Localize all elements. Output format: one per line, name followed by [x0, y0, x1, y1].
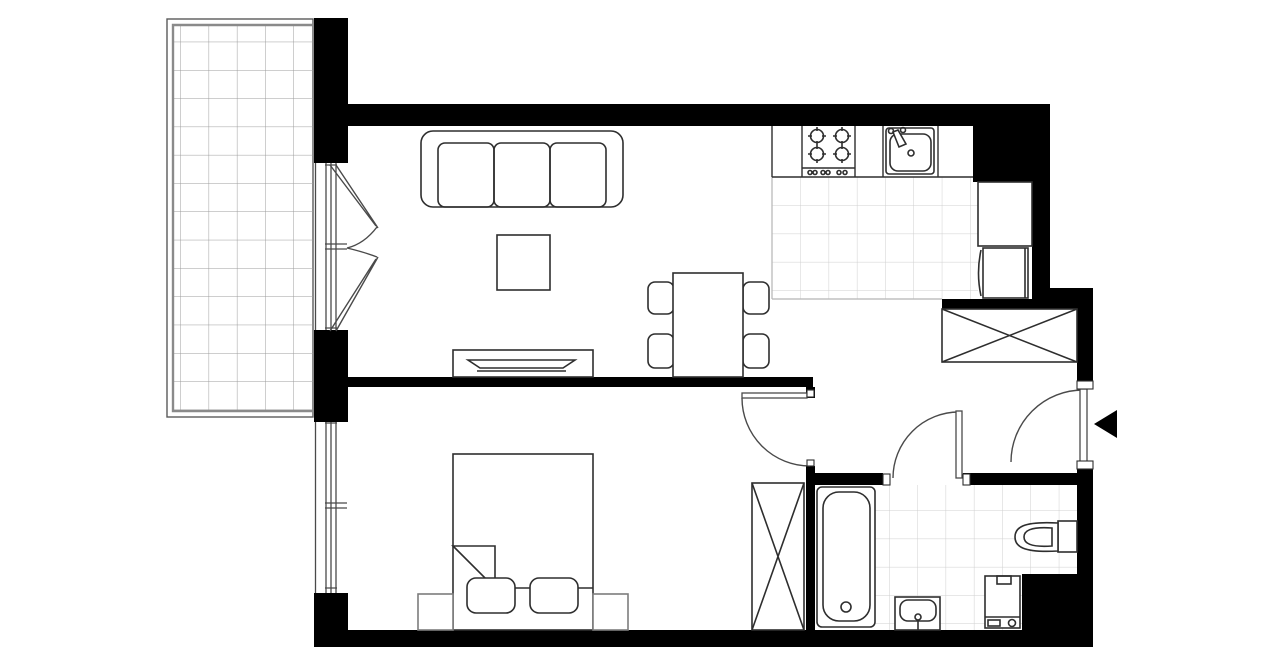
tv-screen	[468, 360, 575, 368]
kitchen-counter	[772, 126, 973, 177]
kitchen-sink	[886, 128, 934, 175]
bedroom	[418, 454, 804, 630]
burner-ticks	[808, 127, 826, 145]
entrance-door-arc	[1011, 390, 1083, 462]
burner	[836, 130, 849, 143]
toilet	[1015, 521, 1077, 552]
tv-stand	[453, 350, 593, 377]
dining-chair	[743, 282, 769, 314]
fridge-cabinet	[983, 248, 1028, 298]
bedroom-door	[742, 390, 814, 466]
bedroom-window	[316, 422, 348, 593]
bedroom-door-leaf	[742, 393, 807, 398]
right-wall-upper	[1077, 309, 1093, 388]
bedroom-door-hinge-mark	[807, 390, 814, 397]
bathroom-door-arc	[893, 412, 959, 478]
burner-ticks	[808, 145, 826, 163]
balcony-french-doors	[316, 163, 379, 331]
balcony-door-leaf-top	[330, 165, 378, 228]
washbasin	[895, 597, 940, 630]
bathtub-outer	[817, 487, 875, 627]
bedroom-door-arc	[742, 398, 810, 466]
bathroom-door-leaf	[956, 411, 962, 478]
kitchen-tall-cabinets	[978, 182, 1032, 298]
burner	[811, 130, 824, 143]
burner-ticks	[833, 127, 851, 145]
toilet-tank	[1058, 521, 1077, 552]
left-wall-middle	[314, 330, 348, 422]
bottom-wall	[314, 630, 1093, 647]
sofa	[421, 131, 623, 207]
entrance-door-frame-mark	[1077, 461, 1093, 469]
entrance-arrow-icon	[1094, 410, 1117, 438]
pillow	[467, 578, 515, 613]
washing-machine	[985, 576, 1020, 628]
balcony-door-arc-top	[347, 227, 377, 248]
coffee-table	[497, 235, 550, 290]
dining-chair	[648, 334, 674, 368]
dining-chair	[648, 282, 674, 314]
living-bedroom-wall	[348, 377, 813, 387]
balcony	[167, 19, 313, 417]
kitchen-corner-wall	[973, 104, 1050, 182]
dining-chair	[743, 334, 769, 368]
bathroom-corner-mass	[1022, 574, 1077, 630]
burner	[811, 148, 824, 161]
entrance-door-leaf	[1080, 389, 1087, 462]
nightstand-left	[418, 594, 453, 630]
right-wall-lower	[1077, 487, 1093, 630]
cooktop	[802, 127, 855, 175]
bathroom-door-frame-mark	[963, 474, 970, 485]
entrance-door-frame-mark	[1077, 381, 1093, 389]
bathroom-door-frame-mark	[883, 474, 890, 485]
bedroom-bathroom-wall	[806, 466, 815, 630]
kitchen-floor-tiles	[772, 177, 978, 299]
dining-table	[673, 273, 743, 377]
bathtub	[817, 487, 875, 627]
pillow	[530, 578, 578, 613]
balcony-door-frame	[316, 163, 337, 330]
hallway	[742, 309, 1117, 485]
hall-top-wall	[942, 299, 1032, 309]
balcony-door-arc-bottom	[347, 248, 377, 257]
hall-top-corner-wall	[1032, 288, 1093, 309]
double-bed	[453, 454, 593, 630]
dining-set	[648, 273, 769, 377]
bedroom-door-frame-mark	[807, 460, 814, 466]
entrance-door	[1011, 381, 1117, 469]
cooktop-knobs	[808, 171, 847, 175]
bathroom-top-wall-left	[815, 473, 883, 485]
hall-wardrobe	[942, 309, 1077, 362]
balcony-door-leaf-bottom	[330, 257, 378, 331]
living-dining	[421, 131, 769, 377]
floor-plan-drawing	[0, 0, 1280, 667]
left-wall-upper	[314, 18, 348, 163]
tall-cabinet	[978, 182, 1032, 246]
top-wall	[348, 104, 973, 126]
kitchen-niche-wall	[1032, 182, 1050, 289]
burner	[836, 148, 849, 161]
burner-ticks	[833, 145, 851, 163]
bedroom-wardrobe	[752, 483, 804, 630]
balcony-floor-tiles	[173, 25, 313, 411]
floor-plan-page	[0, 0, 1280, 667]
nightstand-right	[593, 594, 628, 630]
bathroom-door	[883, 411, 970, 485]
bathroom-top-wall-right	[963, 473, 1077, 485]
